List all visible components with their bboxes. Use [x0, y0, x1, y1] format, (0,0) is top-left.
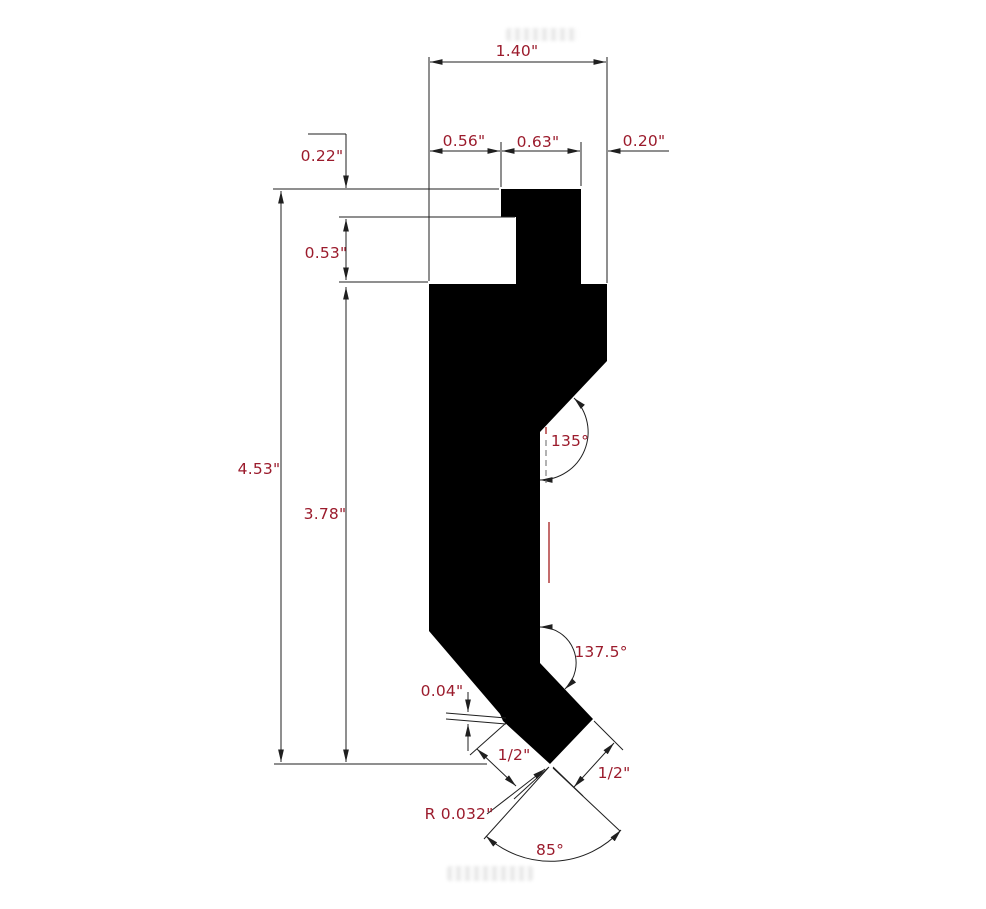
label-shoulder-step: 0.04"	[421, 682, 464, 700]
label-tang-right-offset: 0.20"	[623, 132, 666, 150]
label-total-width: 1.40"	[496, 42, 539, 60]
label-top-step-height: 0.22"	[301, 147, 344, 165]
ext-right-face-upper	[594, 721, 623, 750]
label-upper-relief-angle: 135°	[551, 432, 589, 450]
label-lower-relief-angle: 137.5°	[574, 643, 627, 661]
ext-left-face-lower	[514, 767, 549, 799]
label-tang-width: 0.63"	[517, 133, 560, 151]
label-neck-height: 0.53"	[305, 244, 348, 262]
ext-step-face-upper	[446, 713, 506, 718]
ext-tip-vee-left	[484, 768, 548, 839]
label-left-tip-face: 1/2"	[498, 746, 531, 764]
label-body-height: 3.78"	[304, 505, 347, 523]
ext-step-face-lower	[446, 719, 506, 724]
punch-profile-shape	[429, 189, 607, 764]
label-overall-height: 4.53"	[238, 460, 281, 478]
label-tang-left-offset: 0.56"	[443, 132, 486, 150]
leader-tip-radius	[487, 769, 545, 814]
label-right-tip-face: 1/2"	[598, 764, 631, 782]
auxiliary-marks	[546, 427, 549, 583]
technical-drawing-canvas: 1.40" 0.56" 0.63" 0.20" 0.22" 0.53" 4.53…	[0, 0, 986, 909]
label-tip-included-angle: 85°	[536, 841, 564, 859]
label-tip-radius: R 0.032"	[425, 805, 494, 823]
